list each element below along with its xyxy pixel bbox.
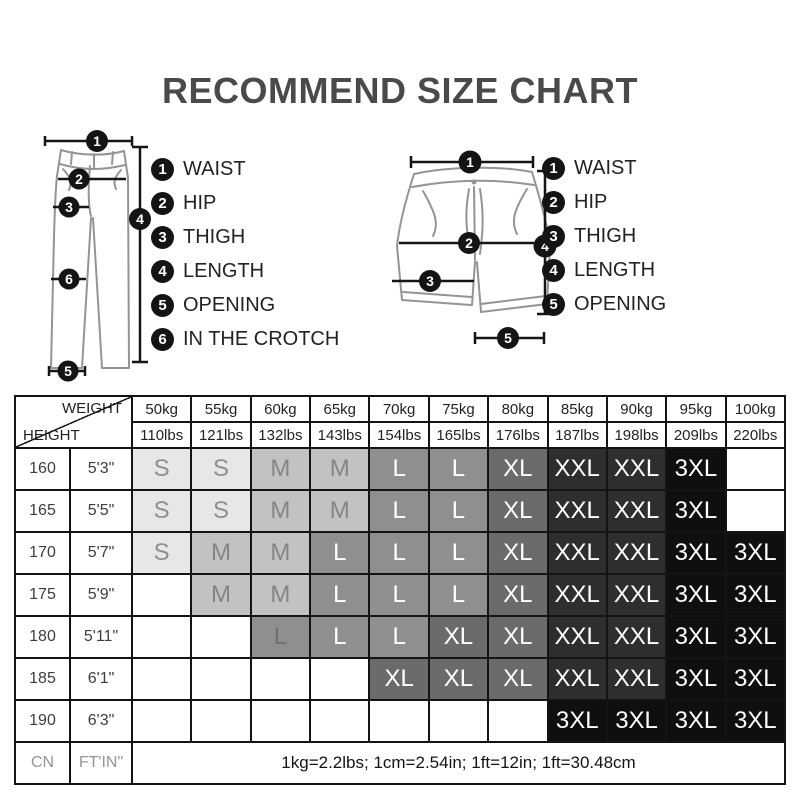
legend-label: OPENING <box>574 293 666 316</box>
weight-lbs-header: 154lbs <box>369 422 428 448</box>
size-cell: M <box>251 448 310 490</box>
size-cell: XL <box>429 658 488 700</box>
size-cell: 3XL <box>666 658 725 700</box>
empty-cell <box>191 658 250 700</box>
empty-cell <box>132 700 191 742</box>
empty-cell <box>132 574 191 616</box>
weight-kg-header: 100kg <box>726 396 785 422</box>
svg-text:5: 5 <box>504 330 512 346</box>
empty-cell <box>429 700 488 742</box>
legend-number-badge: 5 <box>151 294 174 317</box>
size-row: 1655'5"SSMMLLXLXXLXXL3XL <box>15 490 785 532</box>
size-cell: XL <box>488 532 547 574</box>
size-row: 1805'11"LLLXLXLXXLXXL3XL3XL <box>15 616 785 658</box>
size-cell: XXL <box>548 574 607 616</box>
empty-cell <box>191 616 250 658</box>
legend-number-badge: 2 <box>151 192 174 215</box>
size-cell: M <box>310 448 369 490</box>
legend-label: IN THE CROTCH <box>183 328 339 351</box>
legend-item-hip: 2 HIP <box>151 186 339 220</box>
shorts-marker-thigh: 3 <box>419 270 441 292</box>
footer-row: CNFT'IN"1kg=2.2lbs; 1cm=2.54in; 1ft=12in… <box>15 742 785 784</box>
size-cell: L <box>369 616 428 658</box>
size-cell: 3XL <box>726 574 785 616</box>
footer-ftin-label: FT'IN" <box>70 742 132 784</box>
empty-cell <box>251 658 310 700</box>
size-cell: L <box>429 532 488 574</box>
weight-kg-header: 95kg <box>666 396 725 422</box>
size-cell: XXL <box>548 490 607 532</box>
size-cell: 3XL <box>726 700 785 742</box>
size-cell: 3XL <box>666 532 725 574</box>
pants-diagram: 1 2 3 4 6 5 <box>36 126 168 388</box>
size-table: WEIGHTHEIGHT50kg55kg60kg65kg70kg75kg80kg… <box>14 395 786 785</box>
legend-item-thigh: 3 THIGH <box>542 219 666 253</box>
size-cell: 3XL <box>666 574 725 616</box>
empty-cell <box>132 658 191 700</box>
pants-marker-opening: 5 <box>58 361 79 382</box>
legend-item-waist: 1 WAIST <box>151 152 339 186</box>
corner-weight-label: WEIGHT <box>62 400 122 417</box>
legend-label: THIGH <box>574 225 636 248</box>
size-cell: L <box>310 532 369 574</box>
empty-cell <box>726 448 785 490</box>
legend-item-waist: 1 WAIST <box>542 151 666 185</box>
pants-marker-hip: 2 <box>69 169 90 190</box>
size-cell: 3XL <box>666 490 725 532</box>
size-cell: S <box>132 490 191 532</box>
svg-text:4: 4 <box>136 211 144 227</box>
size-cell: XXL <box>607 616 666 658</box>
footer-cn-label: CN <box>15 742 70 784</box>
empty-cell <box>191 700 250 742</box>
size-cell: XXL <box>607 574 666 616</box>
svg-text:3: 3 <box>426 273 434 289</box>
size-cell: L <box>369 532 428 574</box>
empty-cell <box>310 658 369 700</box>
height-cn-cell: 160 <box>15 448 70 490</box>
legend-number-badge: 5 <box>542 293 565 316</box>
legend-item-thigh: 3 THIGH <box>151 220 339 254</box>
weight-kg-header: 50kg <box>132 396 191 422</box>
weight-kg-header: 85kg <box>548 396 607 422</box>
legend-number-badge: 3 <box>151 226 174 249</box>
weight-kg-header: 65kg <box>310 396 369 422</box>
weight-lbs-header: 121lbs <box>191 422 250 448</box>
legend-label: WAIST <box>574 157 637 180</box>
size-cell: L <box>310 574 369 616</box>
empty-cell <box>310 700 369 742</box>
svg-text:1: 1 <box>93 133 101 149</box>
size-cell: 3XL <box>666 616 725 658</box>
pants-marker-length: 4 <box>129 208 151 230</box>
weight-lbs-header: 110lbs <box>132 422 191 448</box>
corner-height-label: HEIGHT <box>23 427 80 444</box>
legend-item-length: 4 LENGTH <box>542 253 666 287</box>
pants-marker-thigh: 3 <box>59 197 80 218</box>
size-cell: XL <box>369 658 428 700</box>
size-cell: L <box>429 490 488 532</box>
size-cell: M <box>251 490 310 532</box>
height-cn-cell: 170 <box>15 532 70 574</box>
size-cell: L <box>429 448 488 490</box>
legend-item-in-the-crotch: 6 IN THE CROTCH <box>151 322 339 356</box>
header-row-kg: WEIGHTHEIGHT50kg55kg60kg65kg70kg75kg80kg… <box>15 396 785 422</box>
size-cell: 3XL <box>726 658 785 700</box>
size-cell: XXL <box>548 448 607 490</box>
size-cell: XXL <box>548 532 607 574</box>
empty-cell <box>132 616 191 658</box>
size-chart-page: RECOMMEND SIZE CHART <box>0 0 800 800</box>
legend-number-badge: 1 <box>542 157 565 180</box>
shorts-marker-hip: 2 <box>458 232 480 254</box>
size-row: 1755'9"MMLLLXLXXLXXL3XL3XL <box>15 574 785 616</box>
weight-lbs-header: 198lbs <box>607 422 666 448</box>
pants-marker-crotch: 6 <box>59 269 80 290</box>
size-row: 1605'3"SSMMLLXLXXLXXL3XL <box>15 448 785 490</box>
pants-marker-waist: 1 <box>86 130 108 152</box>
empty-cell <box>726 490 785 532</box>
legend-label: LENGTH <box>183 260 264 283</box>
height-cn-cell: 185 <box>15 658 70 700</box>
svg-text:2: 2 <box>465 235 473 251</box>
svg-text:6: 6 <box>65 271 73 287</box>
legend-label: HIP <box>574 191 607 214</box>
size-cell: XXL <box>607 490 666 532</box>
legend-label: LENGTH <box>574 259 655 282</box>
svg-text:5: 5 <box>64 363 72 379</box>
conversion-note: 1kg=2.2lbs; 1cm=2.54in; 1ft=12in; 1ft=30… <box>132 742 785 784</box>
legend-number-badge: 4 <box>151 260 174 283</box>
size-cell: L <box>369 574 428 616</box>
weight-lbs-header: 176lbs <box>488 422 547 448</box>
legend-item-opening: 5 OPENING <box>151 288 339 322</box>
size-cell: XL <box>488 658 547 700</box>
weight-kg-header: 90kg <box>607 396 666 422</box>
legend-label: OPENING <box>183 294 275 317</box>
weight-kg-header: 70kg <box>369 396 428 422</box>
size-cell: S <box>191 490 250 532</box>
shorts-legend: 1 WAIST 2 HIP 3 THIGH 4 LENGTH 5 OPENING <box>542 151 666 321</box>
size-cell: L <box>369 490 428 532</box>
height-ftin-cell: 5'3" <box>70 448 132 490</box>
size-cell: L <box>429 574 488 616</box>
weight-lbs-header: 209lbs <box>666 422 725 448</box>
size-cell: M <box>191 574 250 616</box>
page-title: RECOMMEND SIZE CHART <box>0 70 800 112</box>
weight-kg-header: 60kg <box>251 396 310 422</box>
weight-lbs-header: 132lbs <box>251 422 310 448</box>
legend-label: WAIST <box>183 158 246 181</box>
weight-lbs-header: 187lbs <box>548 422 607 448</box>
size-cell: 3XL <box>666 700 725 742</box>
size-cell: S <box>132 448 191 490</box>
legend-number-badge: 2 <box>542 191 565 214</box>
size-cell: XL <box>488 574 547 616</box>
height-cn-cell: 180 <box>15 616 70 658</box>
size-cell: L <box>369 448 428 490</box>
size-cell: XL <box>488 448 547 490</box>
shorts-marker-waist: 1 <box>459 151 482 174</box>
height-cn-cell: 165 <box>15 490 70 532</box>
size-cell: 3XL <box>726 616 785 658</box>
pants-outline <box>51 150 129 368</box>
legend-label: THIGH <box>183 226 245 249</box>
weight-lbs-header: 220lbs <box>726 422 785 448</box>
legend-item-length: 4 LENGTH <box>151 254 339 288</box>
size-cell: XL <box>488 616 547 658</box>
svg-text:1: 1 <box>466 154 474 170</box>
legend-item-opening: 5 OPENING <box>542 287 666 321</box>
size-cell: L <box>251 616 310 658</box>
size-cell: 3XL <box>726 532 785 574</box>
size-cell: M <box>251 574 310 616</box>
weight-lbs-header: 165lbs <box>429 422 488 448</box>
size-cell: 3XL <box>666 448 725 490</box>
legend-label: HIP <box>183 192 216 215</box>
weight-kg-header: 80kg <box>488 396 547 422</box>
size-cell: M <box>191 532 250 574</box>
size-cell: S <box>191 448 250 490</box>
size-cell: XL <box>429 616 488 658</box>
shorts-marker-opening: 5 <box>497 327 519 349</box>
legend-number-badge: 1 <box>151 158 174 181</box>
height-ftin-cell: 6'3" <box>70 700 132 742</box>
size-row: 1856'1"XLXLXLXXLXXL3XL3XL <box>15 658 785 700</box>
weight-kg-header: 75kg <box>429 396 488 422</box>
height-ftin-cell: 5'11" <box>70 616 132 658</box>
corner-cell: WEIGHTHEIGHT <box>15 396 132 448</box>
legend-number-badge: 3 <box>542 225 565 248</box>
legend-number-badge: 6 <box>151 328 174 351</box>
size-row: 1906'3"3XL3XL3XL3XL <box>15 700 785 742</box>
weight-lbs-header: 143lbs <box>310 422 369 448</box>
size-cell: XXL <box>607 658 666 700</box>
size-cell: XXL <box>548 616 607 658</box>
size-cell: M <box>251 532 310 574</box>
size-cell: M <box>310 490 369 532</box>
legend-number-badge: 4 <box>542 259 565 282</box>
height-ftin-cell: 5'9" <box>70 574 132 616</box>
height-cn-cell: 175 <box>15 574 70 616</box>
svg-text:3: 3 <box>65 199 73 215</box>
size-cell: S <box>132 532 191 574</box>
size-row: 1705'7"SMMLLLXLXXLXXL3XL3XL <box>15 532 785 574</box>
pants-measure-lines <box>45 136 148 376</box>
height-ftin-cell: 6'1" <box>70 658 132 700</box>
size-cell: 3XL <box>607 700 666 742</box>
size-cell: XL <box>488 490 547 532</box>
size-cell: 3XL <box>548 700 607 742</box>
height-ftin-cell: 5'7" <box>70 532 132 574</box>
weight-kg-header: 55kg <box>191 396 250 422</box>
pants-legend: 1 WAIST 2 HIP 3 THIGH 4 LENGTH 5 OPENING… <box>151 152 339 356</box>
height-ftin-cell: 5'5" <box>70 490 132 532</box>
size-cell: L <box>310 616 369 658</box>
size-cell: XXL <box>607 532 666 574</box>
empty-cell <box>369 700 428 742</box>
legend-item-hip: 2 HIP <box>542 185 666 219</box>
size-cell: XXL <box>607 448 666 490</box>
height-cn-cell: 190 <box>15 700 70 742</box>
empty-cell <box>251 700 310 742</box>
size-cell: XXL <box>548 658 607 700</box>
empty-cell <box>488 700 547 742</box>
svg-text:2: 2 <box>75 171 83 187</box>
